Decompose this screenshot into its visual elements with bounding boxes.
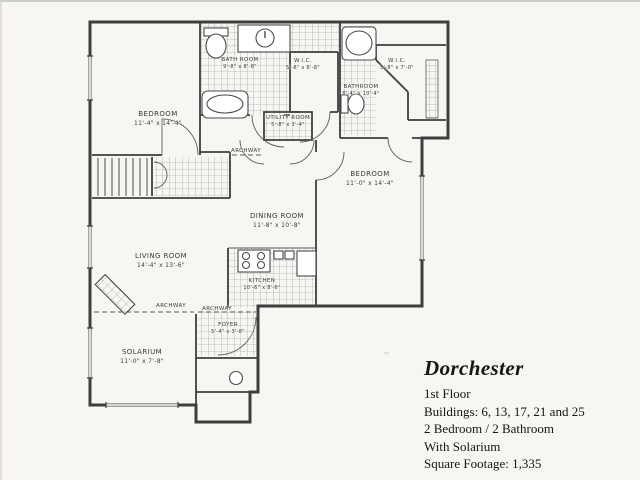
room-dims: 8'-4" x 10'-4"	[342, 91, 379, 97]
plan-buildings: Buildings: 6, 13, 17, 21 and 25	[424, 403, 636, 421]
bathtub-right	[342, 27, 376, 60]
room-label-bedroom-left: BEDROOM 11'-4" x 14'-4"	[134, 110, 182, 127]
room-label-kitchen: KITCHEN 10'-6" x 8'-6"	[243, 278, 280, 291]
plan-info-block: Dorchester 1st Floor Buildings: 6, 13, 1…	[424, 356, 636, 473]
room-label-wic-right: W.I.C. 5'-8" x 7'-0"	[380, 58, 414, 71]
entry-circle	[230, 372, 243, 385]
room-name: SOLARIUM	[120, 348, 164, 356]
room-name: KITCHEN	[243, 278, 280, 284]
refrigerator	[297, 251, 316, 276]
plan-sqft: Square Footage: 1,335	[424, 455, 636, 473]
room-dims: 11'-0" x 14'-4"	[346, 180, 394, 187]
room-name: DINING ROOM	[250, 212, 304, 220]
room-name: BATHROOM	[342, 84, 379, 90]
room-name: W.I.C.	[380, 58, 414, 64]
room-dims: 11'-4" x 14'-4"	[134, 120, 182, 127]
room-label-dining-room: DINING ROOM 11'-8" x 10'-8"	[250, 212, 304, 229]
door-arcs	[154, 112, 412, 355]
archway-label-solarium: ARCHWAY	[156, 303, 186, 309]
vanity-sink-top	[238, 25, 290, 52]
room-dims: 9'-8" x 8'-8"	[221, 64, 258, 70]
room-dims: 5'-8" x 6'-8"	[286, 65, 320, 71]
archway-label-hall: ARCHWAY	[231, 148, 261, 154]
plan-title: Dorchester	[424, 356, 636, 381]
staircase	[98, 158, 147, 196]
toilet-right	[341, 94, 364, 114]
room-dims: 10'-6" x 8'-6"	[243, 285, 280, 291]
room-label-utility-room: UTILITY ROOM 5'-8" x 3'-4"	[266, 115, 310, 128]
room-name: BATH ROOM	[221, 57, 258, 63]
archway-label-foyer: ARCHWAY	[202, 306, 232, 312]
plan-floor: 1st Floor	[424, 385, 636, 403]
room-label-wic-middle: W.I.C. 5'-8" x 6'-8"	[286, 58, 320, 71]
room-dims: 14'-4" x 13'-6"	[135, 262, 187, 269]
room-dims: 5'-8" x 7'-0"	[380, 65, 414, 71]
room-label-bathroom-top: BATH ROOM 9'-8" x 8'-8"	[221, 57, 258, 70]
room-name: W.I.C.	[286, 58, 320, 64]
floorplan-page: BEDROOM 11'-4" x 14'-4" BATH ROOM 9'-8" …	[0, 0, 640, 480]
bathtub-top	[202, 91, 248, 118]
room-label-living-room: LIVING ROOM 14'-4" x 13'-6"	[135, 252, 187, 269]
room-label-bathroom-right: BATHROOM 8'-4" x 10'-4"	[342, 84, 379, 97]
room-label-bedroom-right: BEDROOM 11'-0" x 14'-4"	[346, 170, 394, 187]
room-label-foyer: FOYER 5'-4" x 3'-8"	[211, 322, 245, 335]
room-name: BEDROOM	[134, 110, 182, 118]
fireplace	[95, 275, 135, 315]
toilet-top	[204, 28, 228, 58]
room-name: FOYER	[211, 322, 245, 328]
room-dims: 5'-4" x 3'-8"	[211, 329, 245, 335]
plan-feature: With Solarium	[424, 438, 636, 456]
room-name: UTILITY ROOM	[266, 115, 310, 121]
plan-layout: 2 Bedroom / 2 Bathroom	[424, 420, 636, 438]
room-dims: 5'-8" x 3'-4"	[266, 122, 310, 128]
room-label-solarium: SOLARIUM 11'-0" x 7'-8"	[120, 348, 164, 365]
room-name: BEDROOM	[346, 170, 394, 178]
stove	[238, 250, 270, 272]
room-dims: 11'-8" x 10'-8"	[250, 222, 304, 229]
room-name: LIVING ROOM	[135, 252, 187, 260]
scan-artifact: ”	[384, 350, 389, 362]
room-dims: 11'-0" x 7'-8"	[120, 358, 164, 365]
